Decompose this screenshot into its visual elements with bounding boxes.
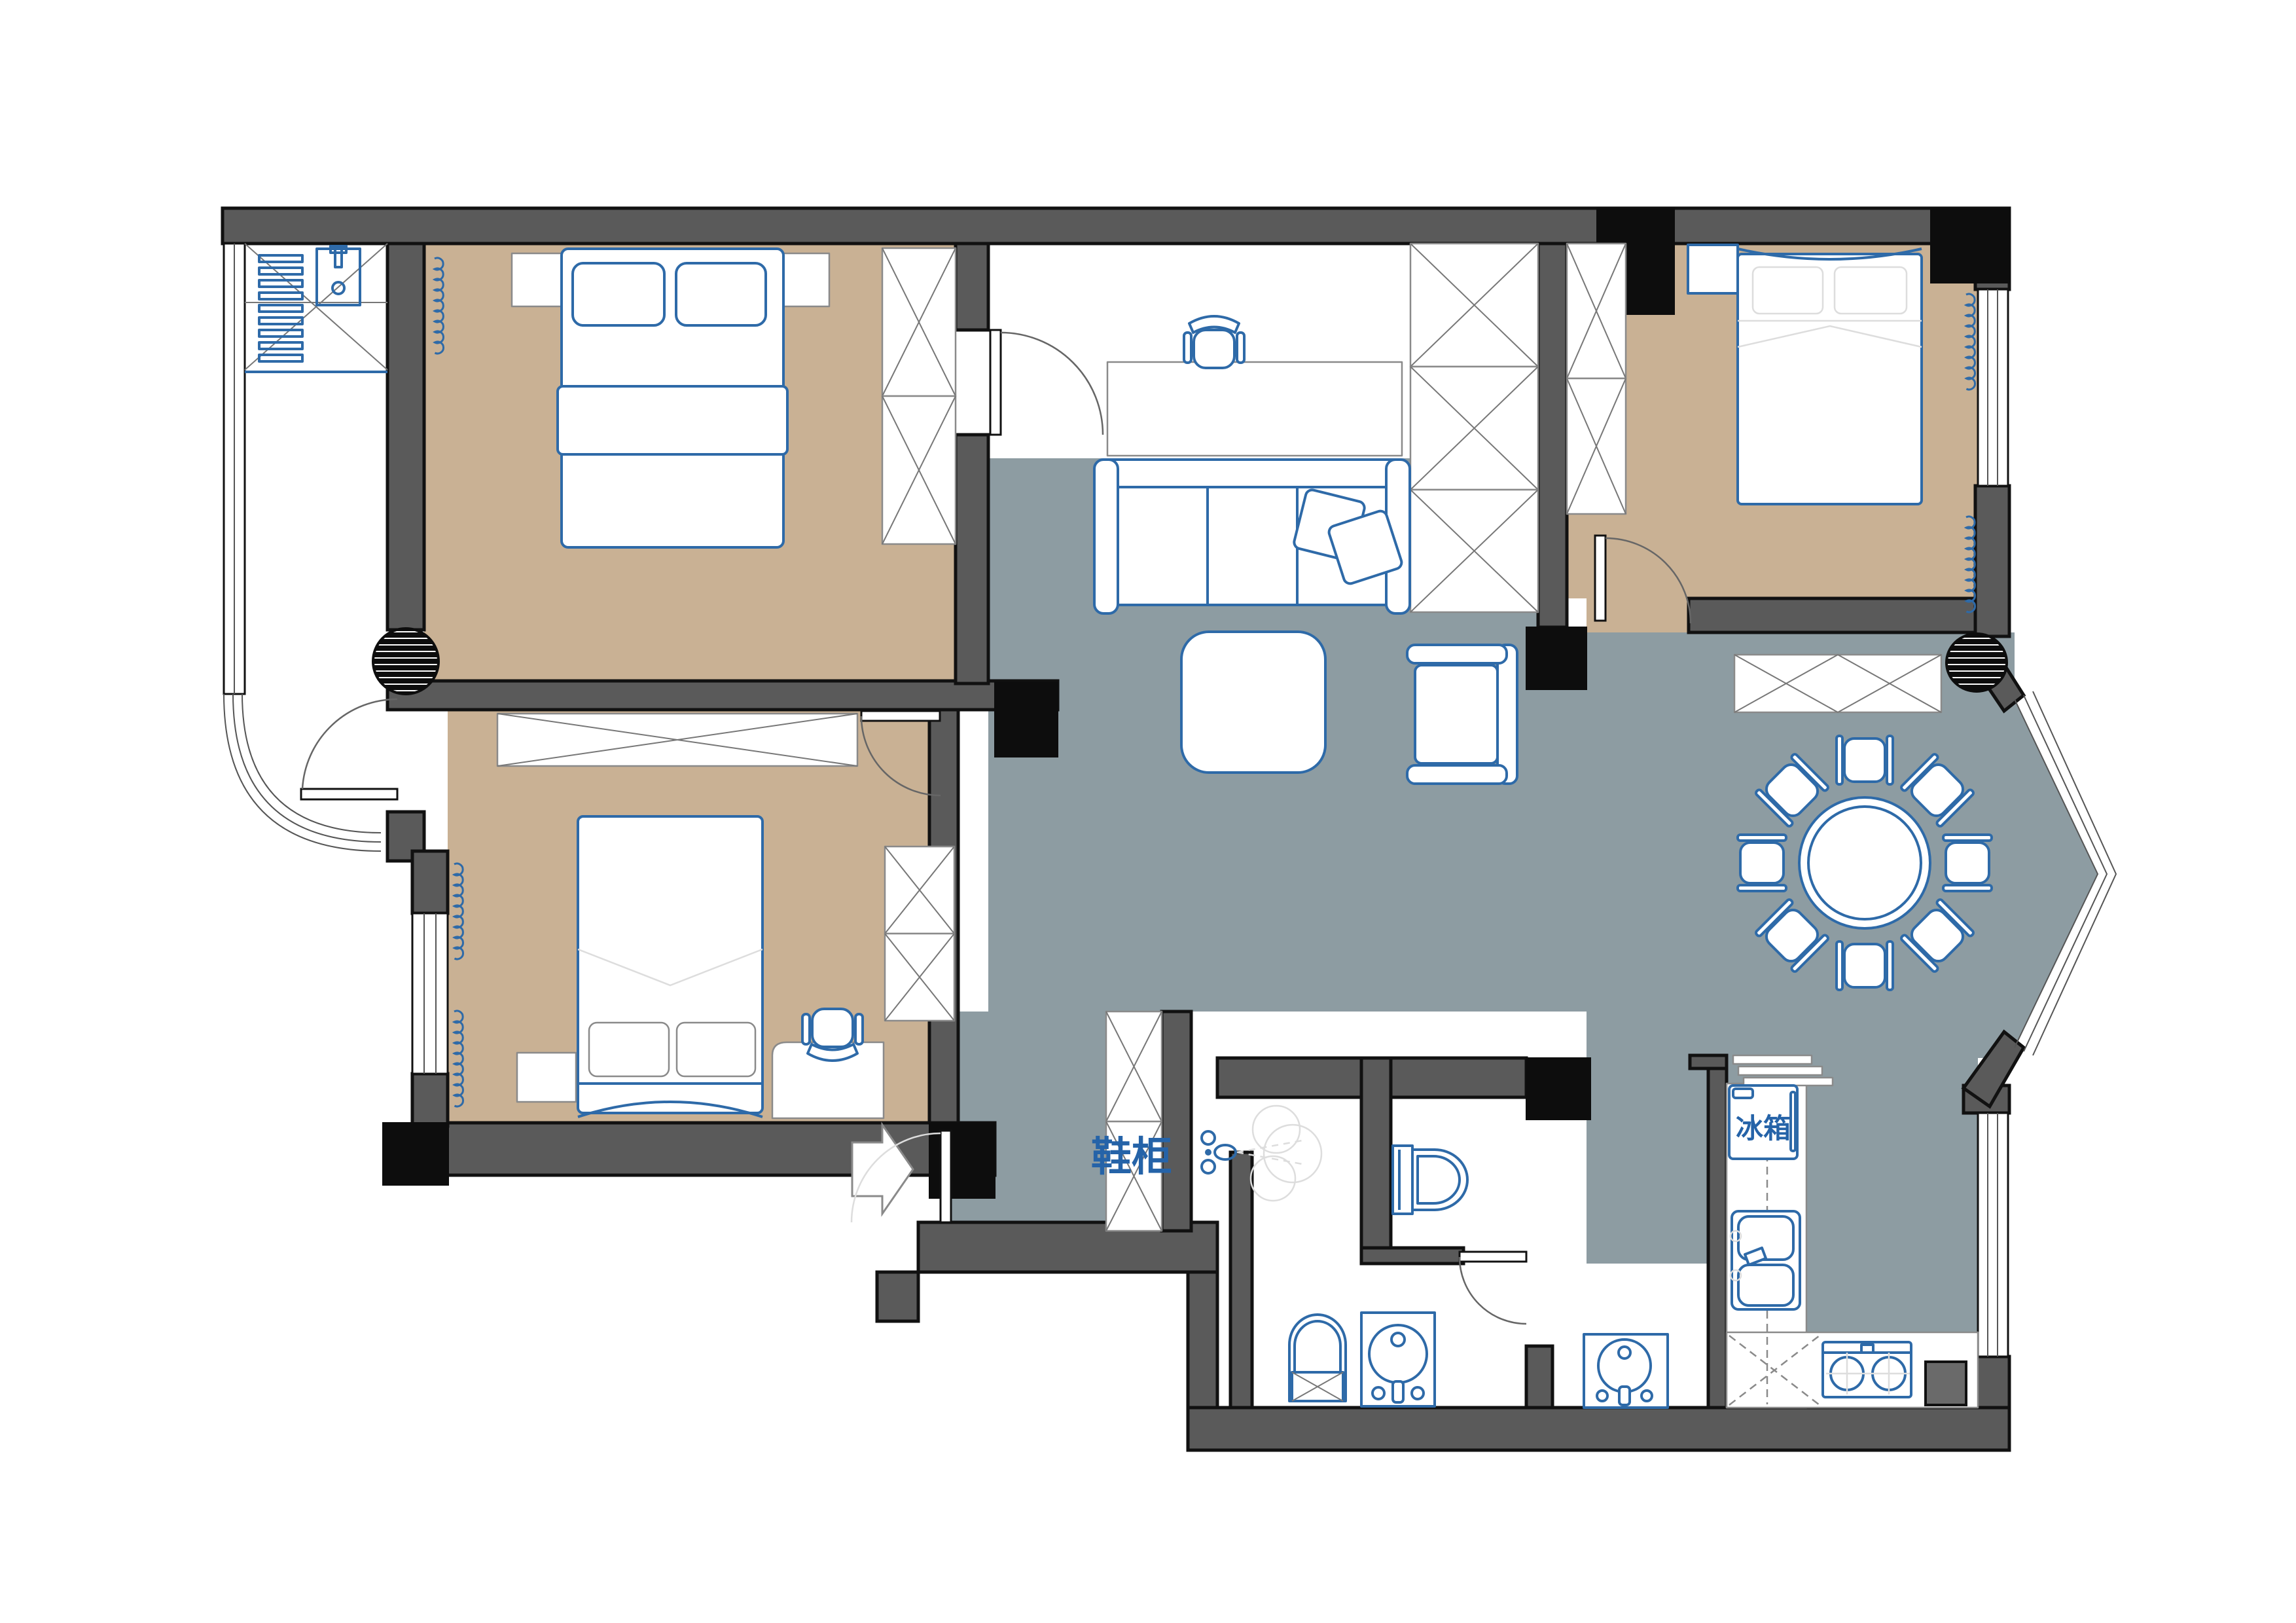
blanket: [558, 386, 787, 454]
wc-bottom-wall: [1361, 1248, 1463, 1264]
bedroom3-bottom-wall: [1689, 598, 1975, 632]
bedroom1-study-wall-lower: [956, 435, 988, 684]
double-bed: [558, 249, 787, 547]
desk: [1107, 362, 1402, 456]
hall-right-floor: [1587, 1012, 1708, 1264]
kitchen-left-wall: [1708, 1055, 1727, 1408]
bath-toilet: [1289, 1315, 1346, 1401]
bedroom2-left-window: [412, 913, 448, 1074]
drying-rack: [259, 255, 302, 361]
kitchen-right-window: [1978, 1113, 2008, 1357]
kitchen-top-stub: [1690, 1055, 1727, 1068]
wc-door: [1460, 1252, 1526, 1324]
dining-chair: [1837, 941, 1893, 990]
round-column-bay: [1946, 634, 2007, 691]
dining-chair: [1837, 736, 1893, 784]
sideboard: [1734, 655, 1941, 712]
shoe-cabinet: [1106, 1012, 1162, 1231]
porch-block: [877, 1272, 918, 1321]
bathroom-left-wall: [1230, 1152, 1252, 1408]
bedroom3-window-block-bottom: [1975, 486, 2009, 636]
wardrobe: [885, 847, 954, 1021]
bath-washbasin: [1361, 1313, 1435, 1406]
basinroom-left-wall: [1526, 1346, 1552, 1408]
nightstand-left: [512, 253, 562, 306]
round-column-balcony: [373, 629, 439, 694]
wardrobe: [882, 248, 956, 544]
wc-left-wall: [1361, 1058, 1391, 1248]
column-bedrooms-junction: [995, 682, 1058, 757]
armchair: [1407, 645, 1517, 784]
pillow: [589, 1023, 669, 1076]
balcony-utility: [245, 244, 397, 799]
pillow: [677, 1023, 755, 1076]
column-top-right-corner: [1931, 208, 2009, 283]
wc-toilet: [1393, 1146, 1467, 1214]
bedrooms-divider-wall: [387, 681, 1058, 710]
column-wc-corner: [1526, 1058, 1590, 1120]
balcony-bedroom-divider: [387, 244, 424, 630]
top-exterior-wall: [223, 208, 2009, 244]
double-bed: [1738, 249, 1922, 504]
appliance: [1926, 1362, 1966, 1405]
pillow: [573, 263, 664, 325]
column-living-bedroom3: [1526, 627, 1587, 689]
double-bed: [578, 816, 762, 1117]
dresser: [497, 714, 857, 766]
second-washbasin: [1584, 1334, 1668, 1408]
office-chair: [1184, 316, 1244, 368]
pillow: [676, 263, 766, 325]
nightstand: [1688, 245, 1738, 293]
nightstand: [517, 1053, 576, 1102]
balcony-door: [301, 699, 397, 799]
utility-sink: [317, 246, 360, 305]
living-dining-link-floor: [1538, 689, 1587, 1012]
bedroom1-door: [990, 330, 1103, 435]
sofa: [1094, 460, 1410, 613]
bedroom3-right-window: [1978, 289, 2008, 486]
nightstand-right: [783, 253, 829, 306]
column-bedroom2-sw: [383, 1123, 448, 1185]
dining-chair: [1738, 835, 1786, 891]
bedroom1-study-wall-upper: [956, 244, 988, 330]
shower-sprayer: [1202, 1106, 1321, 1201]
fridge-label: 冰箱: [1736, 1112, 1791, 1144]
wardrobe: [1567, 244, 1626, 514]
floor-plan-canvas: 鞋柜 冰箱: [0, 0, 2296, 1623]
shoe-cabinet-side-wall: [1162, 1012, 1191, 1231]
bottom-exterior-wall: [1188, 1408, 2009, 1450]
kitchen-sink: [1731, 1211, 1800, 1309]
dining-chair: [1943, 835, 1992, 891]
storage-closet: [1410, 244, 1538, 612]
shoe-cabinet-label: 鞋柜: [1091, 1133, 1172, 1180]
round-dining-table: [1799, 797, 1930, 928]
bedroom2-window-block-top: [412, 851, 448, 913]
floor-plan-page: 鞋柜 冰箱: [0, 0, 2296, 1623]
bedroom3-left-wall: [1538, 244, 1567, 627]
coffee-table: [1181, 632, 1325, 773]
bay-window-floor: [2015, 699, 2098, 1048]
bedroom2-window-block-bottom: [412, 1074, 448, 1126]
gas-stove: [1823, 1342, 1911, 1397]
